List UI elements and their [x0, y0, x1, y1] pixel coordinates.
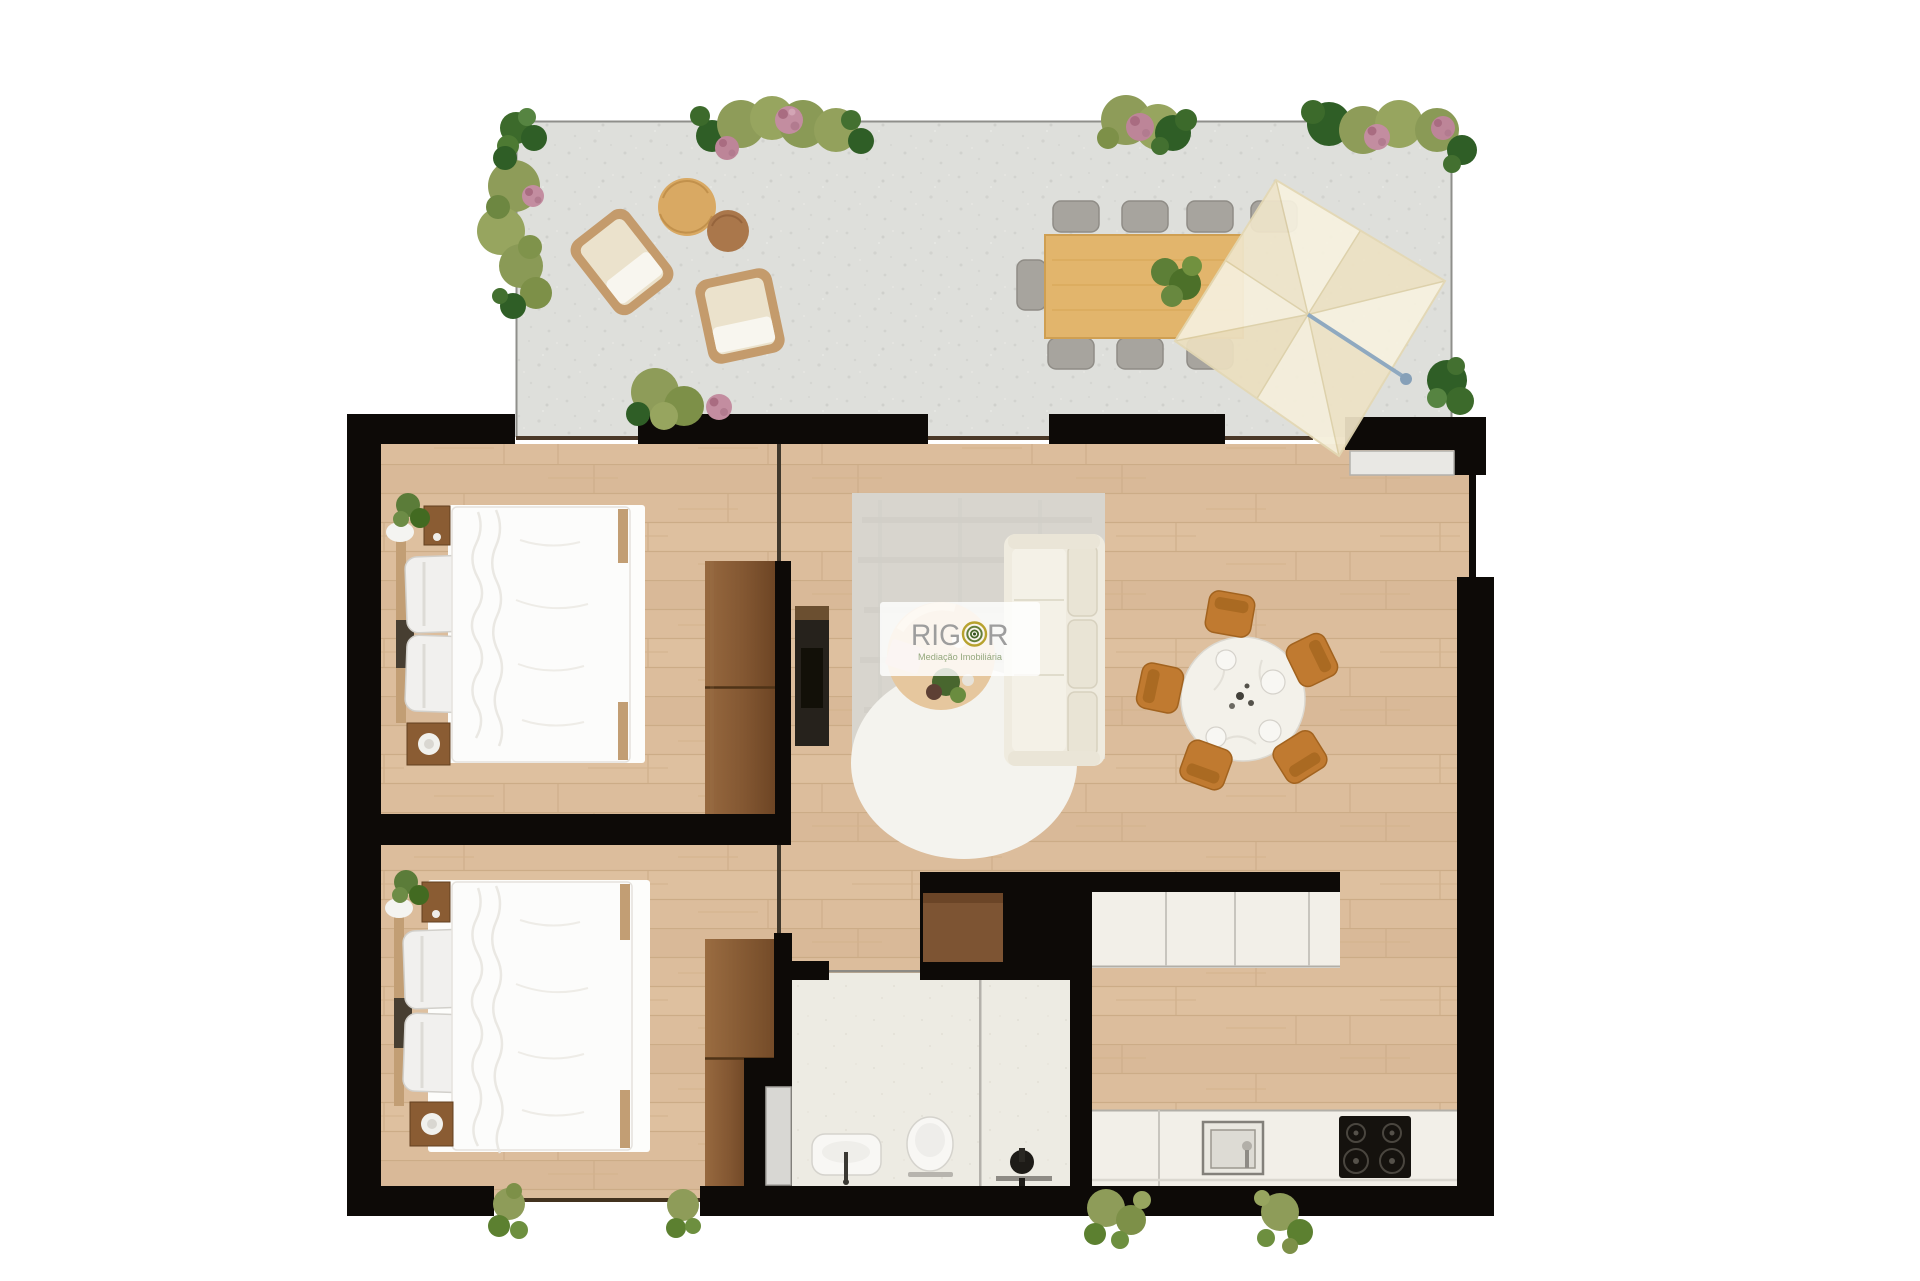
svg-text:RIG: RIG — [911, 619, 961, 652]
svg-text:Mediação Imobiliária: Mediação Imobiliária — [918, 652, 1002, 662]
svg-text:R: R — [987, 619, 1009, 652]
